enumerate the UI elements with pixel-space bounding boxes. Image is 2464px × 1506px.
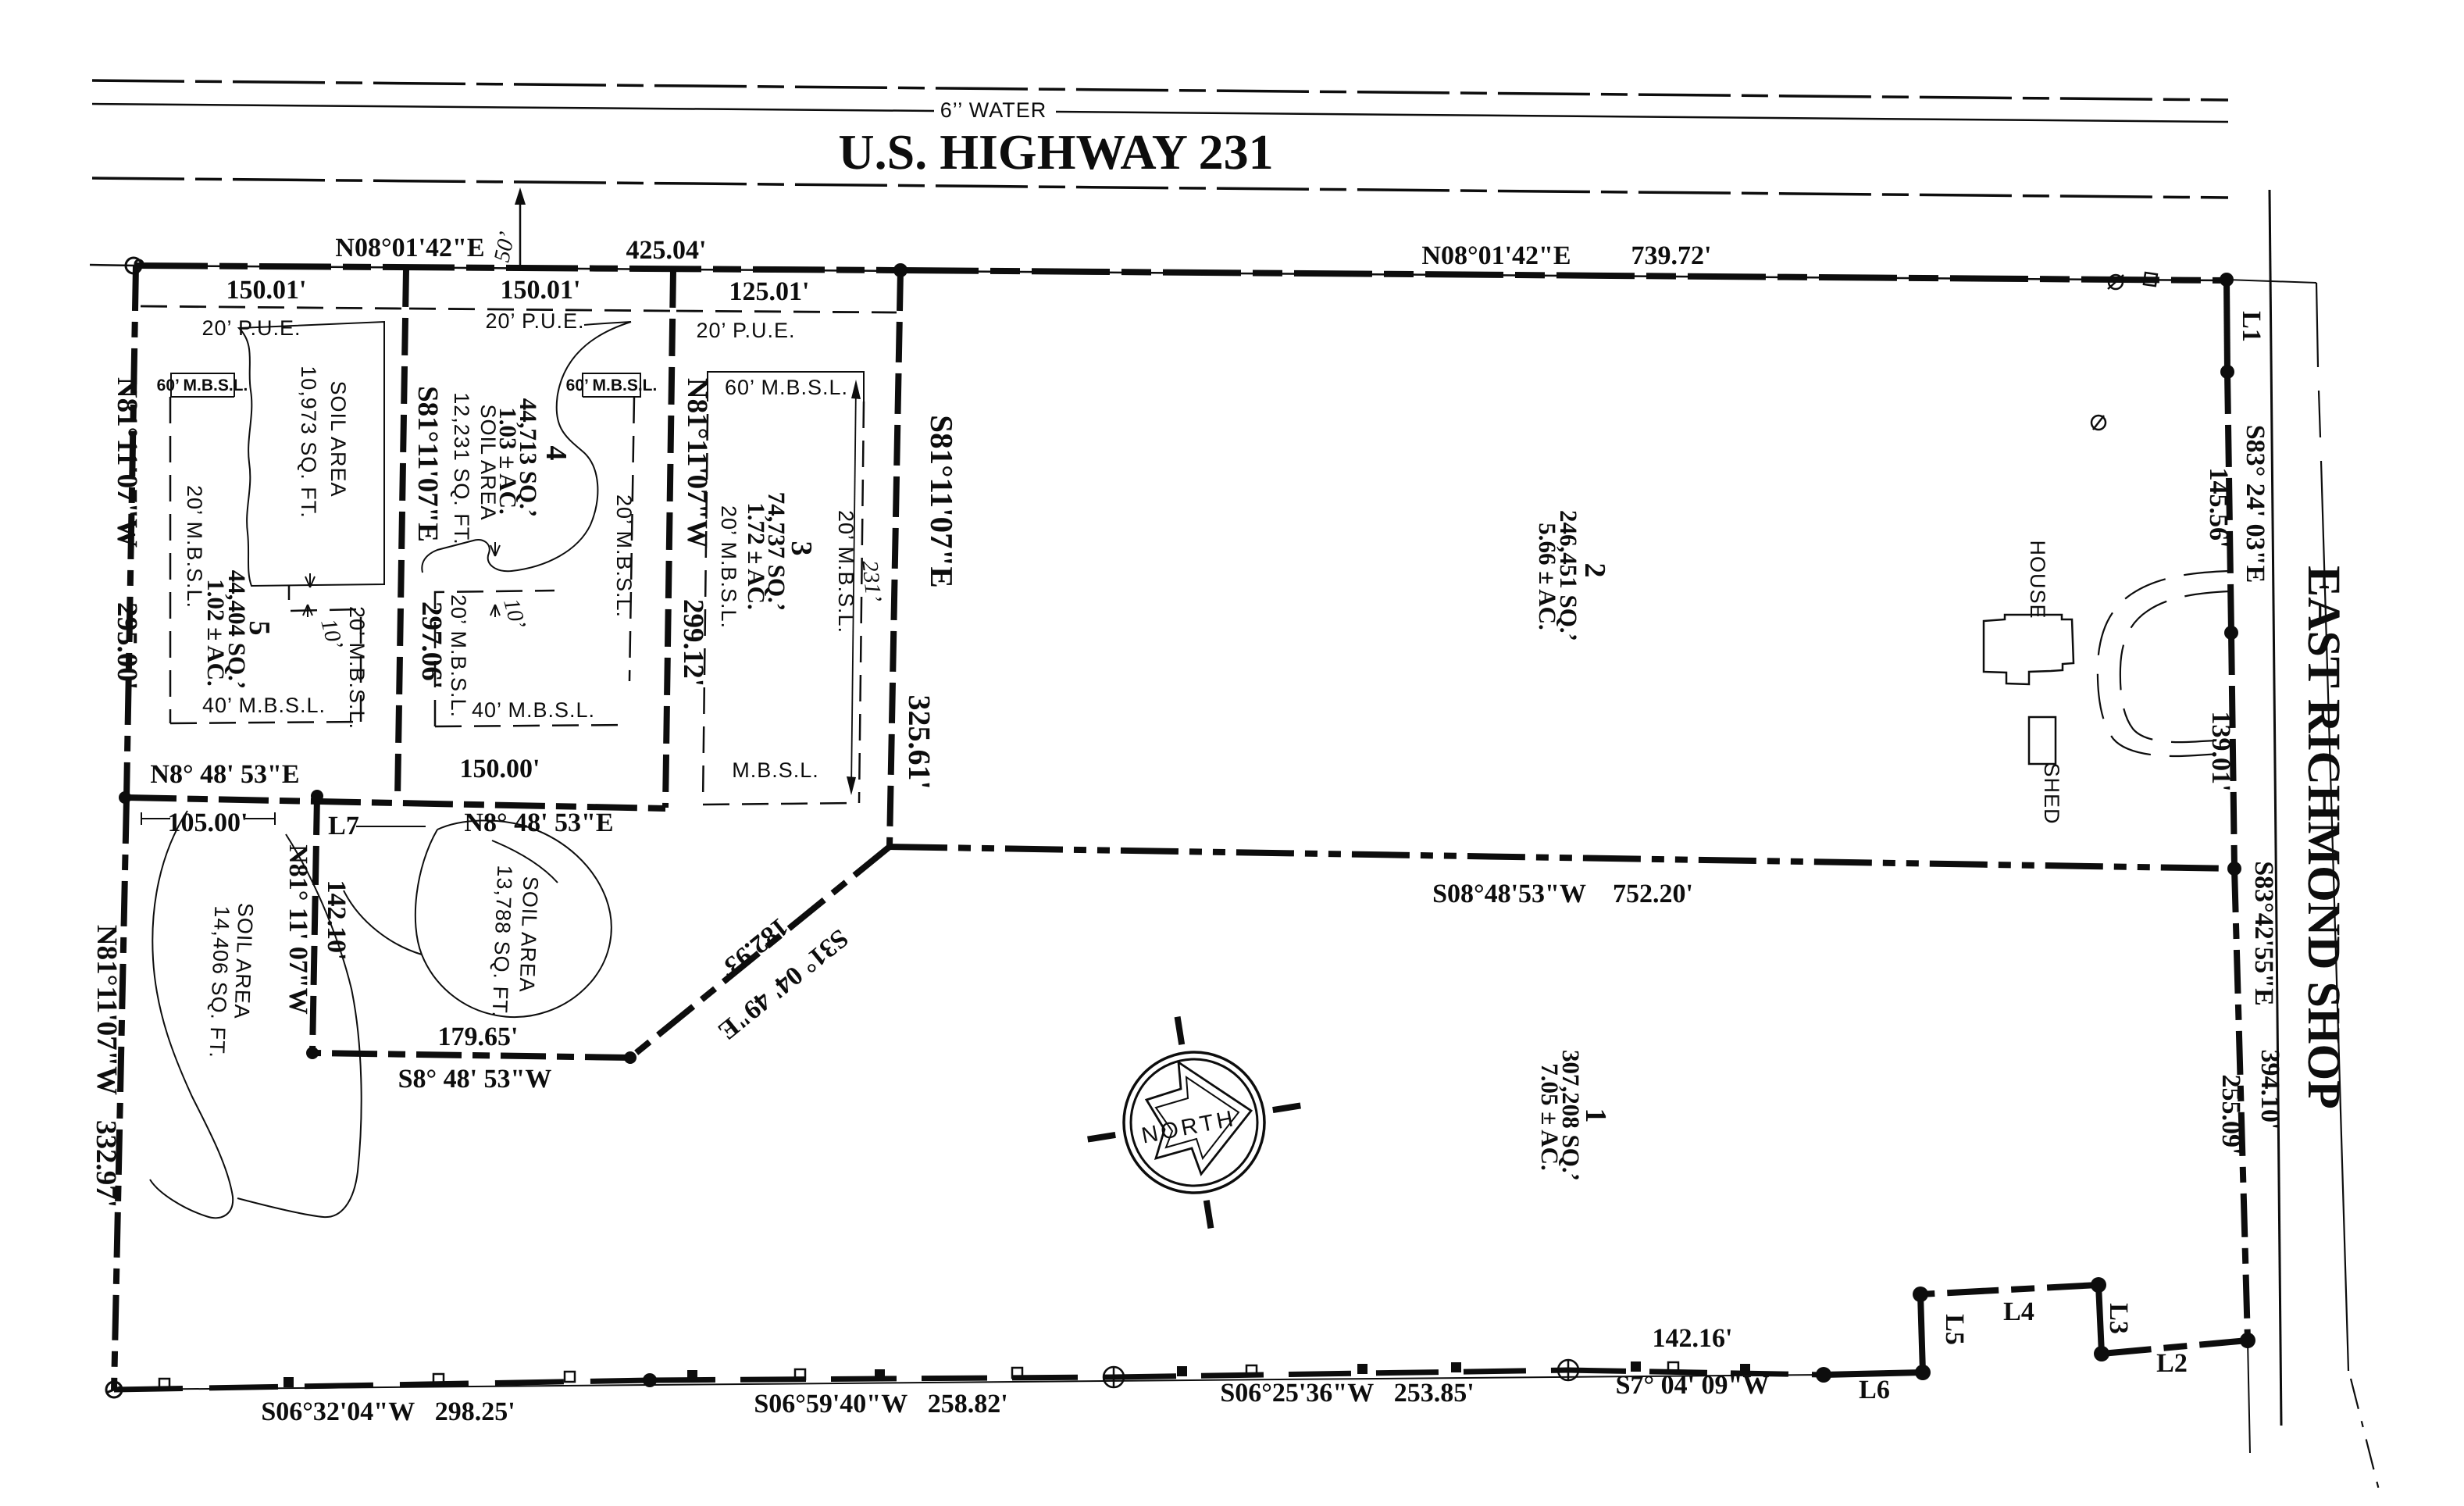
svg-text:N8° 48' 53"E: N8° 48' 53"E bbox=[150, 760, 299, 789]
svg-text:M.B.S.L.: M.B.S.L. bbox=[732, 758, 819, 782]
svg-text:20’ M.B.S.L.: 20’ M.B.S.L. bbox=[717, 505, 740, 629]
svg-text:6’’ WATER: 6’’ WATER bbox=[940, 98, 1047, 122]
svg-text:1.03 ± AC.: 1.03 ± AC. bbox=[494, 407, 522, 515]
svg-text:N08°01'42"E: N08°01'42"E bbox=[1421, 241, 1571, 270]
svg-text:179.65': 179.65' bbox=[438, 1022, 519, 1051]
svg-text:325.61': 325.61' bbox=[902, 694, 937, 789]
svg-text:L3: L3 bbox=[2104, 1303, 2133, 1334]
svg-text:S83°42'55"E: S83°42'55"E bbox=[2249, 861, 2278, 1006]
svg-text:L5: L5 bbox=[1940, 1314, 1969, 1345]
svg-text:L4: L4 bbox=[2003, 1297, 2034, 1326]
svg-text:394.10': 394.10' bbox=[2255, 1050, 2284, 1130]
svg-text:N81°11'07"W: N81°11'07"W bbox=[681, 378, 713, 548]
svg-text:5.66 ± AC.: 5.66 ± AC. bbox=[1534, 523, 1561, 630]
svg-text:739.72': 739.72' bbox=[1631, 241, 1712, 270]
svg-text:150.01': 150.01' bbox=[501, 276, 581, 305]
svg-text:142.10': 142.10' bbox=[322, 880, 351, 961]
svg-text:L6: L6 bbox=[1859, 1376, 1890, 1404]
svg-text:20’ P.U.E.: 20’ P.U.E. bbox=[696, 319, 795, 342]
svg-text:20’ M.B.S.L.: 20’ M.B.S.L. bbox=[834, 510, 858, 633]
svg-text:N81°11'07"W: N81°11'07"W bbox=[111, 377, 143, 548]
svg-text:S81°11'07"E: S81°11'07"E bbox=[924, 415, 960, 587]
svg-text:125.01': 125.01' bbox=[729, 277, 810, 306]
svg-text:S7° 04' 09"W: S7° 04' 09"W bbox=[1616, 1371, 1770, 1400]
svg-text:4: 4 bbox=[540, 446, 572, 461]
svg-text:20’ M.B.S.L.: 20’ M.B.S.L. bbox=[612, 494, 636, 618]
svg-text:231’: 231’ bbox=[857, 559, 886, 603]
svg-text:L2: L2 bbox=[2156, 1349, 2188, 1378]
svg-text:7.05 ± AC.: 7.05 ± AC. bbox=[1536, 1063, 1564, 1171]
svg-text:60’ M.B.S.L.: 60’ M.B.S.L. bbox=[157, 376, 248, 394]
svg-text:N08°01'42"E: N08°01'42"E bbox=[335, 234, 484, 262]
svg-text:295.00': 295.00' bbox=[111, 602, 143, 690]
svg-text:L1: L1 bbox=[2237, 311, 2266, 342]
svg-text:1.72 ± AC.: 1.72 ± AC. bbox=[743, 502, 770, 610]
svg-text:332.97': 332.97' bbox=[90, 1120, 122, 1208]
svg-text:S8° 48' 53"W: S8° 48' 53"W bbox=[398, 1065, 552, 1094]
svg-text:40’ M.B.S.L.: 40’ M.B.S.L. bbox=[472, 698, 595, 722]
svg-text:1.02 ± AC.: 1.02 ± AC. bbox=[202, 579, 230, 687]
svg-text:EAST RICHMOND SHOP: EAST RICHMOND SHOP bbox=[2298, 566, 2350, 1109]
svg-text:145.56': 145.56' bbox=[2204, 468, 2233, 548]
svg-text:150.01': 150.01' bbox=[226, 276, 307, 305]
svg-text:N81° 11' 07"W: N81° 11' 07"W bbox=[283, 844, 312, 1015]
svg-text:20’ P.U.E.: 20’ P.U.E. bbox=[485, 309, 584, 333]
svg-text:U.S. HIGHWAY 231: U.S. HIGHWAY 231 bbox=[838, 124, 1273, 180]
svg-text:S83° 24' 03"E: S83° 24' 03"E bbox=[2241, 425, 2270, 583]
svg-text:S81°11'07"E: S81°11'07"E bbox=[412, 386, 444, 542]
svg-text:SHED: SHED bbox=[2040, 762, 2063, 824]
svg-text:60’ M.B.S.L.: 60’ M.B.S.L. bbox=[725, 376, 848, 399]
svg-text:S06°59'40"W 258.82': S06°59'40"W 258.82' bbox=[754, 1390, 1007, 1419]
svg-text:20’ M.B.S.L.: 20’ M.B.S.L. bbox=[345, 606, 369, 730]
svg-text:2: 2 bbox=[1578, 563, 1611, 578]
svg-text:425.04': 425.04' bbox=[626, 236, 707, 265]
svg-text:SOIL AREA: SOIL AREA bbox=[515, 876, 542, 993]
svg-text:HOUSE: HOUSE bbox=[2026, 540, 2049, 619]
svg-text:40’ M.B.S.L.: 40’ M.B.S.L. bbox=[202, 694, 326, 717]
svg-text:255.09': 255.09' bbox=[2216, 1075, 2245, 1155]
svg-text:20’ M.B.S.L.: 20’ M.B.S.L. bbox=[447, 594, 470, 718]
svg-text:12,231 SQ. FT.: 12,231 SQ. FT. bbox=[450, 392, 473, 545]
svg-text:60’ M.B.S.L.: 60’ M.B.S.L. bbox=[566, 376, 658, 394]
svg-text:142.16': 142.16' bbox=[1653, 1324, 1733, 1353]
svg-text:S08°48'53"W 752.20': S08°48'53"W 752.20' bbox=[1432, 880, 1693, 908]
svg-text:N8° 48' 53"E: N8° 48' 53"E bbox=[464, 808, 613, 837]
svg-text:297.06': 297.06' bbox=[415, 601, 448, 689]
svg-text:10,973 SQ. FT.: 10,973 SQ. FT. bbox=[297, 366, 320, 519]
svg-text:S06°32'04"W 298.25': S06°32'04"W 298.25' bbox=[261, 1397, 515, 1426]
svg-text:150.00': 150.00' bbox=[460, 755, 540, 783]
svg-text:SOIL AREA: SOIL AREA bbox=[326, 380, 350, 497]
svg-text:S06°25'36"W 253.85': S06°25'36"W 253.85' bbox=[1220, 1379, 1474, 1408]
svg-text:139.01': 139.01' bbox=[2206, 712, 2235, 792]
svg-text:N81°11'07"W: N81°11'07"W bbox=[91, 925, 123, 1095]
